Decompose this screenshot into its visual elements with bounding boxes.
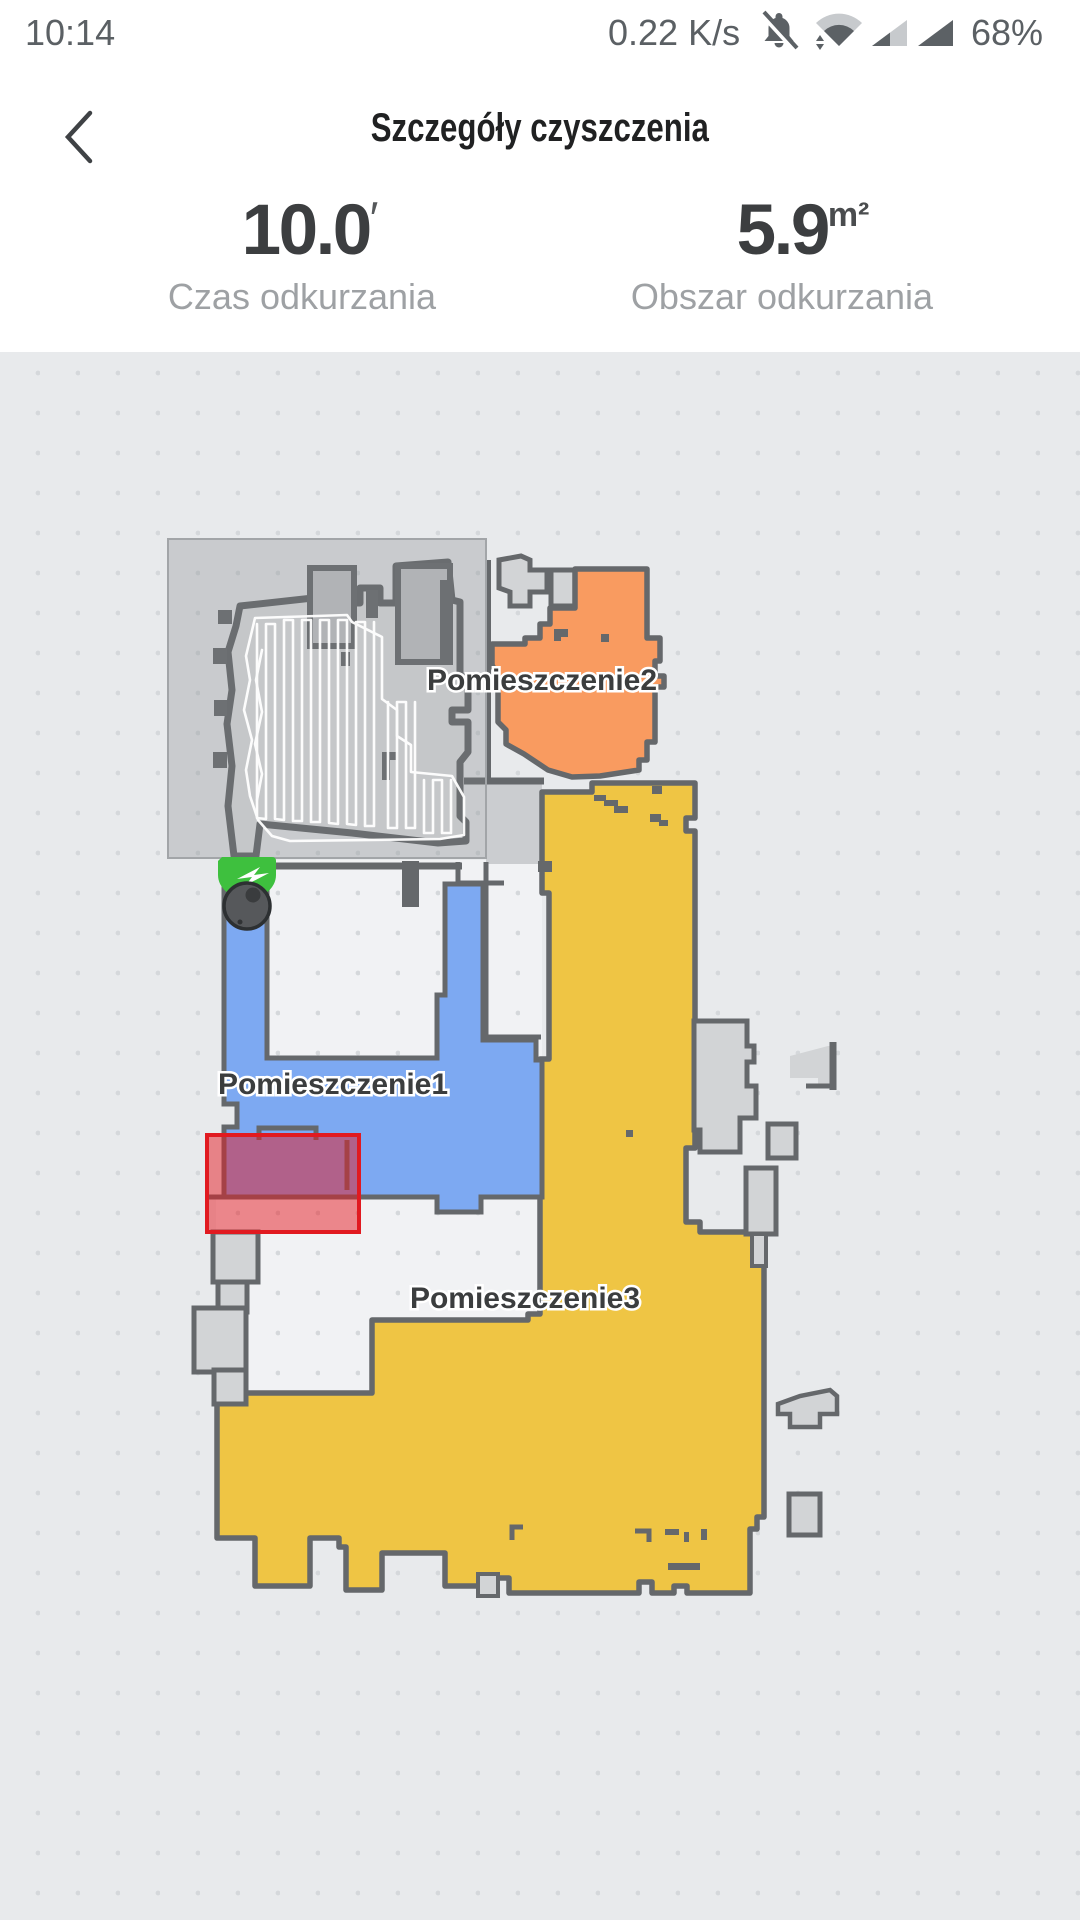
svg-text:Pomieszczenie3: Pomieszczenie3	[410, 1282, 640, 1315]
svg-text:Pomieszczenie2: Pomieszczenie2	[427, 664, 657, 697]
svg-text:Pomieszczenie1: Pomieszczenie1	[218, 1068, 448, 1101]
